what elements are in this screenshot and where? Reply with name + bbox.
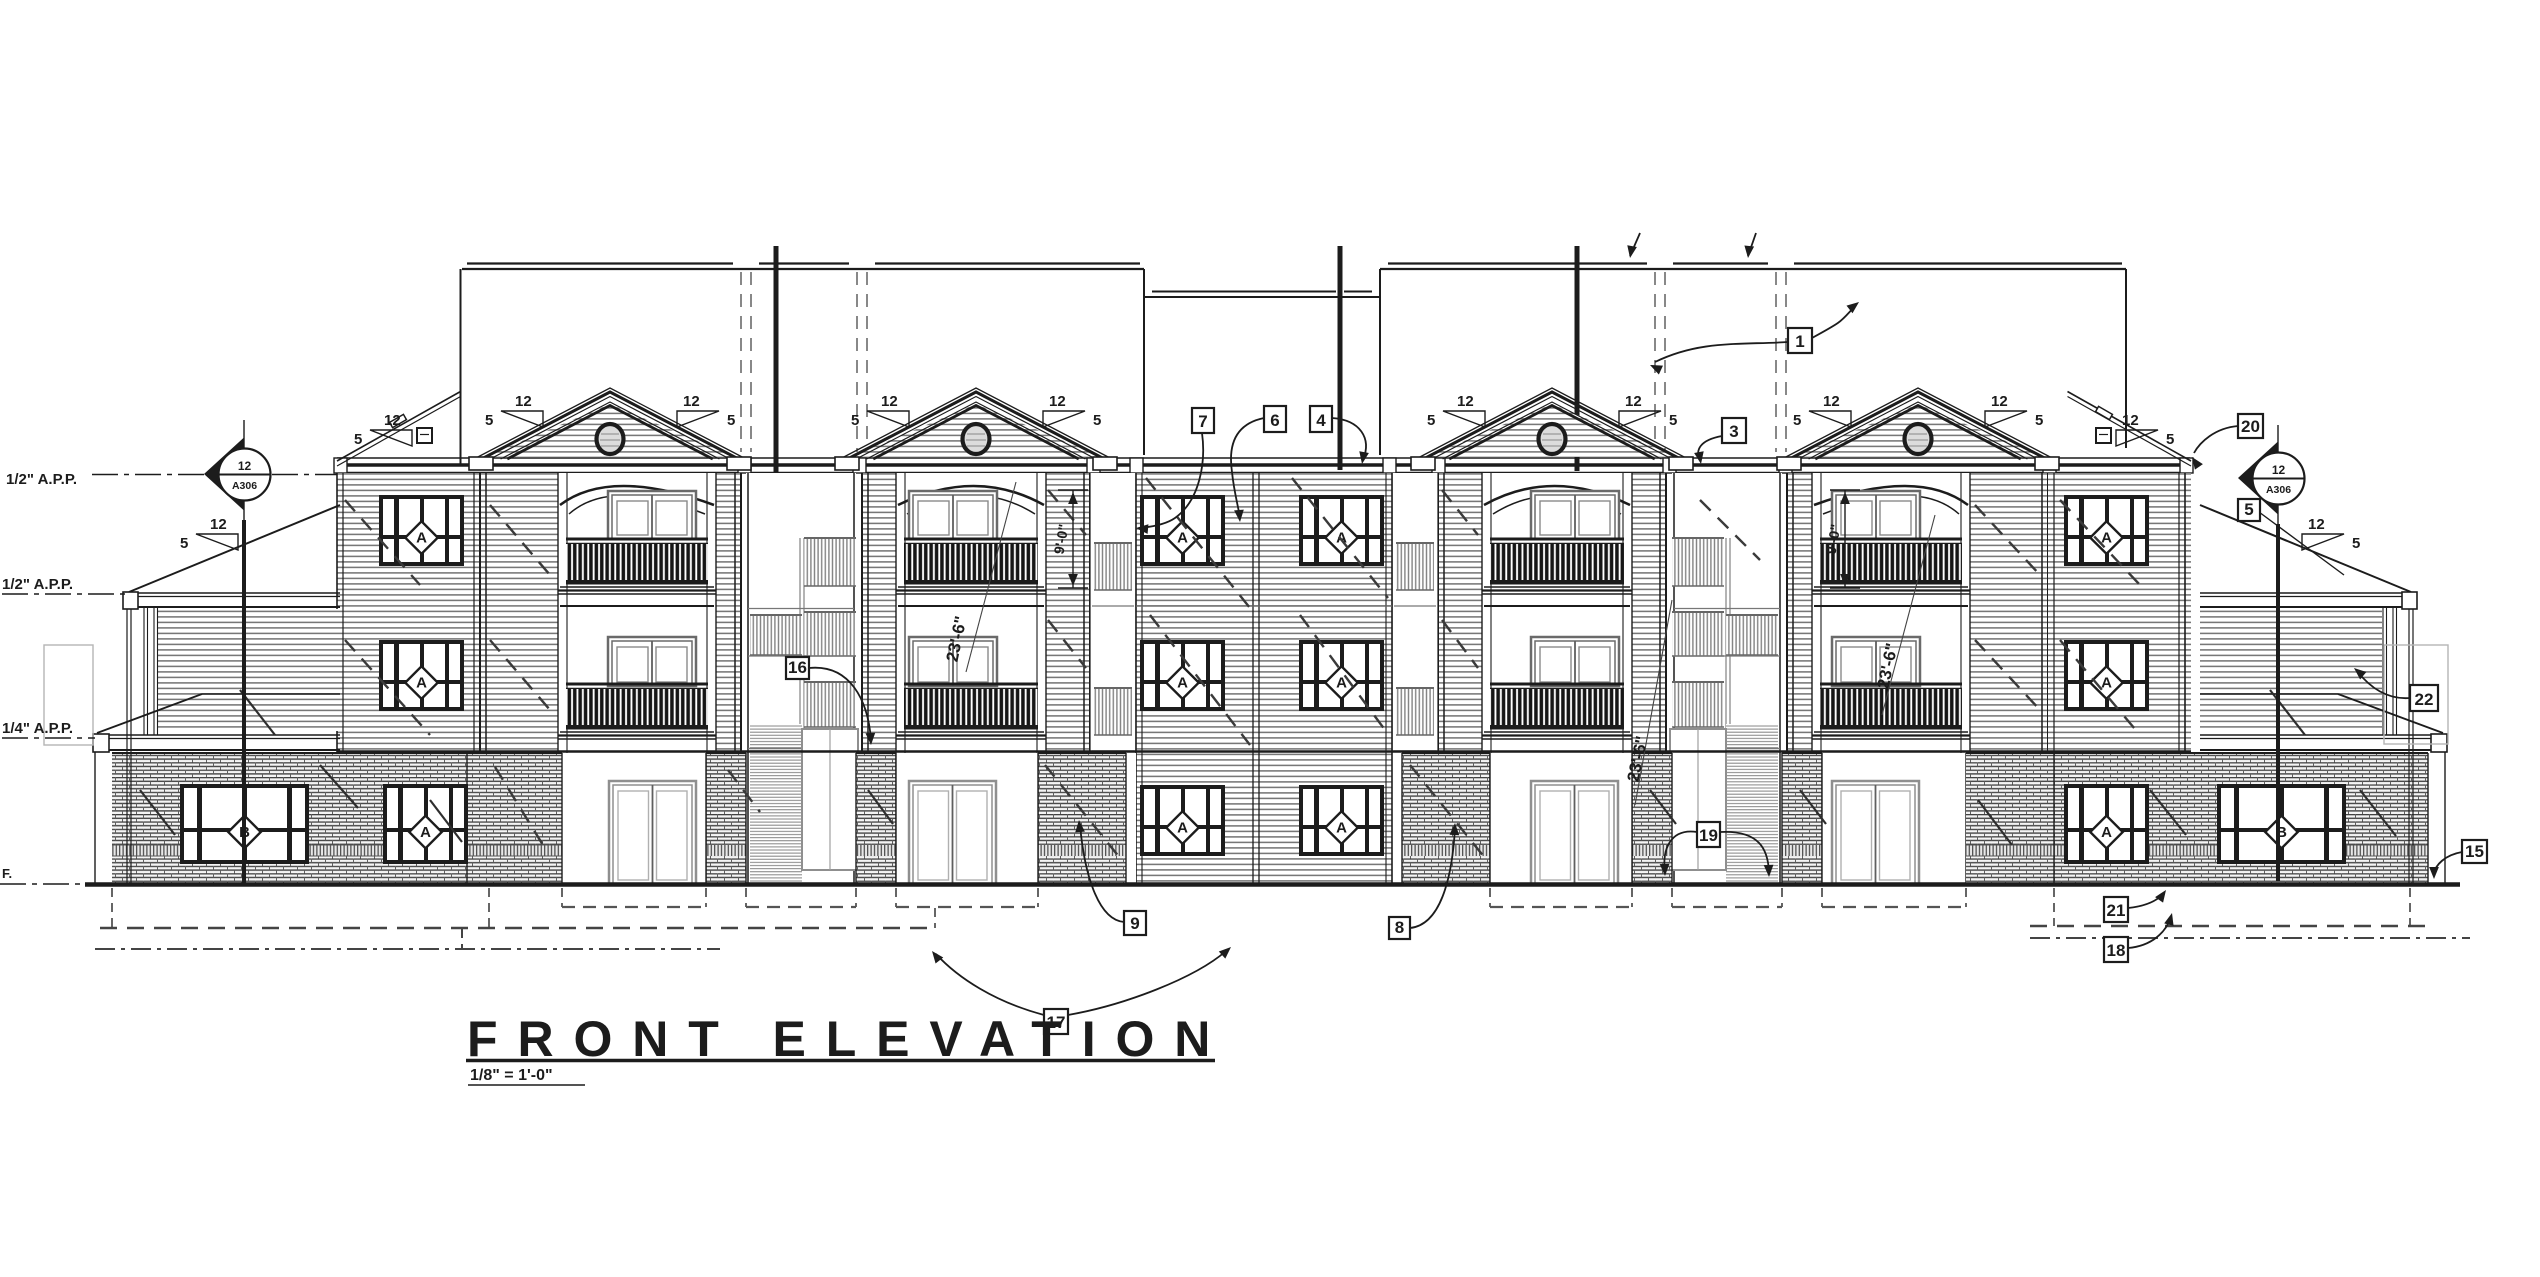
- svg-text:12: 12: [515, 393, 532, 410]
- svg-text:5: 5: [354, 431, 362, 448]
- svg-text:4: 4: [1316, 411, 1326, 430]
- svg-text:7: 7: [1198, 412, 1207, 431]
- svg-text:A: A: [416, 675, 427, 692]
- svg-text:1/4" A.P.P.: 1/4" A.P.P.: [2, 720, 73, 737]
- svg-text:12: 12: [210, 516, 227, 533]
- svg-text:A306: A306: [2266, 484, 2291, 496]
- svg-text:12: 12: [1991, 393, 2008, 410]
- svg-text:F.: F.: [2, 866, 12, 881]
- svg-text:5: 5: [1669, 412, 1677, 429]
- svg-text:16: 16: [788, 658, 807, 677]
- svg-text:A: A: [1336, 820, 1347, 837]
- svg-text:18: 18: [2107, 941, 2126, 960]
- svg-text:12: 12: [238, 459, 252, 473]
- svg-text:12: 12: [683, 393, 700, 410]
- svg-text:5: 5: [851, 412, 859, 429]
- svg-text:12: 12: [2122, 412, 2139, 429]
- svg-text:12: 12: [2272, 463, 2286, 477]
- svg-text:A: A: [416, 530, 427, 547]
- svg-text:1: 1: [1795, 332, 1804, 351]
- svg-text:5: 5: [2244, 500, 2253, 519]
- svg-text:5: 5: [2166, 431, 2174, 448]
- svg-text:1/8" = 1'-0": 1/8" = 1'-0": [470, 1067, 553, 1084]
- svg-text:5: 5: [1793, 412, 1801, 429]
- svg-text:12: 12: [1625, 393, 1642, 410]
- svg-text:5: 5: [2035, 412, 2043, 429]
- svg-text:12: 12: [1823, 393, 1840, 410]
- svg-text:A: A: [1177, 675, 1188, 692]
- svg-text:15: 15: [2465, 842, 2484, 861]
- svg-text:A: A: [1177, 820, 1188, 837]
- svg-text:5: 5: [1093, 412, 1101, 429]
- svg-text:9: 9: [1130, 914, 1139, 933]
- svg-text:5: 5: [1427, 412, 1435, 429]
- svg-text:5: 5: [180, 535, 188, 552]
- svg-text:8: 8: [1395, 918, 1404, 937]
- svg-text:12: 12: [881, 393, 898, 410]
- svg-text:12: 12: [2308, 516, 2325, 533]
- svg-text:19: 19: [1699, 826, 1718, 845]
- svg-text:A306: A306: [232, 480, 257, 492]
- svg-text:A: A: [2101, 675, 2112, 692]
- svg-text:A: A: [2101, 824, 2112, 841]
- svg-text:3: 3: [1729, 422, 1738, 441]
- svg-text:1/2" A.P.P.: 1/2" A.P.P.: [2, 576, 73, 593]
- svg-text:22: 22: [2415, 690, 2434, 709]
- svg-text:A: A: [420, 824, 431, 841]
- svg-text:12: 12: [384, 412, 401, 429]
- svg-text:FRONT ELEVATION: FRONT ELEVATION: [467, 1011, 1230, 1067]
- svg-text:A: A: [1177, 530, 1188, 547]
- svg-text:1/2" A.P.P.: 1/2" A.P.P.: [6, 471, 77, 488]
- svg-text:5: 5: [727, 412, 735, 429]
- svg-text:12: 12: [1049, 393, 1066, 410]
- svg-text:21: 21: [2107, 901, 2126, 920]
- svg-text:5: 5: [485, 412, 493, 429]
- svg-text:12: 12: [1457, 393, 1474, 410]
- svg-text:6: 6: [1270, 411, 1279, 430]
- svg-text:20: 20: [2241, 417, 2260, 436]
- svg-text:5: 5: [2352, 535, 2360, 552]
